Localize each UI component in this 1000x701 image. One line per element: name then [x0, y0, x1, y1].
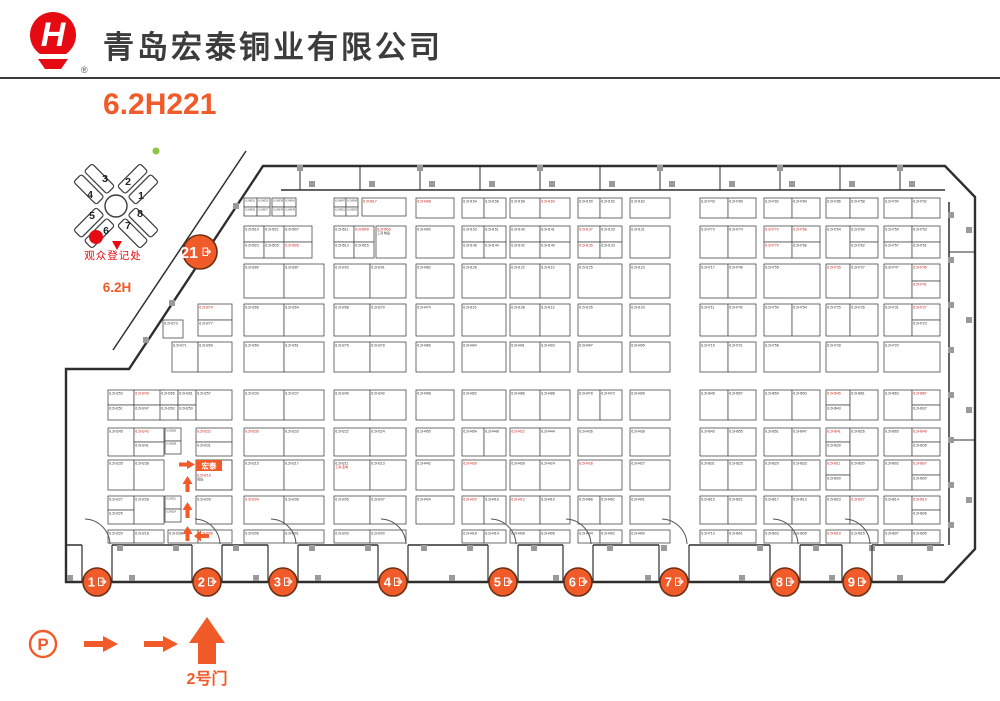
- pillar: [927, 545, 933, 551]
- booth-number: 6.2H270: [371, 306, 385, 310]
- pillar: [849, 181, 855, 187]
- booth-subtext: 工具 宝电: [335, 464, 348, 469]
- pillar: [67, 575, 73, 581]
- pillar: [909, 181, 915, 187]
- booth-number: 6.2H232: [197, 430, 211, 434]
- minimap-hall-number: 8: [137, 208, 143, 220]
- booth-number: 6.2H731: [885, 306, 899, 310]
- booth-number: 6.2H141: [541, 228, 555, 232]
- booth-number: 6.2H116: [463, 306, 476, 310]
- booth-number: 6.2H786: [827, 200, 841, 204]
- walk-arrow-icon: [84, 636, 118, 652]
- booth-number: 6.2H513: [335, 244, 349, 248]
- booth-number: 6.2H753: [913, 228, 927, 232]
- booth-number: 6.2H235: [109, 462, 123, 466]
- booth-number: 6.2H637: [913, 407, 927, 411]
- booth-number: 6.2H774: [729, 228, 743, 232]
- booth-number: 6.2H291: [371, 266, 385, 270]
- booth-number: 6.2H152: [601, 200, 615, 204]
- booth-number: 6.2H162: [631, 200, 645, 204]
- booth-number: 6.2H525: [265, 244, 279, 248]
- booth-number: 6.2H131: [631, 228, 645, 232]
- pillar: [309, 181, 315, 187]
- booth-number: 6.2H242: [371, 392, 385, 396]
- booth-number: 6.2H271: [173, 344, 187, 348]
- pillar: [309, 545, 315, 551]
- minimap-center-hub: [105, 195, 127, 217]
- booth-number: 6.2H726: [851, 306, 865, 310]
- booth-number: 6.2H490: [417, 228, 431, 232]
- pillar: [897, 575, 903, 581]
- booth-number: 6.2H711: [701, 306, 714, 310]
- booth-number: 6.2H220: [109, 532, 123, 536]
- booth-number: 6.2H245: [109, 430, 123, 434]
- booth-number: 6.2H639: [827, 444, 841, 448]
- booth-number: 6.2H151: [485, 228, 499, 232]
- booth-number: 6.2H450: [417, 430, 431, 434]
- booth-number: 6.2H623: [827, 498, 841, 502]
- booth-number: 6.2H509: [355, 228, 369, 232]
- booth-number: 6.2H772: [765, 228, 779, 232]
- pillar: [966, 497, 972, 503]
- pillar: [789, 181, 795, 187]
- booth-number: 6.2H257: [197, 392, 211, 396]
- booth-number: 6.2H438: [631, 430, 645, 434]
- booth-number: 6.2H661: [851, 392, 865, 396]
- booth-number: 6.2H537: [258, 208, 268, 212]
- gate2-entry-arrow-icon: [189, 617, 225, 664]
- booth-number: 6.2H204: [245, 498, 259, 502]
- highlight-booth-name: 宏泰: [202, 460, 217, 470]
- gate-number: 4: [384, 575, 392, 590]
- booth-number: 6.2H416: [485, 498, 499, 502]
- booth-number: 6.2H643: [701, 430, 715, 434]
- booth-number: 6.2H410: [541, 498, 555, 502]
- pillar: [129, 575, 135, 581]
- pillar: [669, 181, 675, 187]
- booth-number: 6.2H200: [371, 532, 385, 536]
- booth-number: 6.2H422: [511, 430, 525, 434]
- booth-number: 6.2H412: [511, 498, 525, 502]
- booth-number: 6.2H754: [793, 306, 807, 310]
- booth-number: 6.2H770: [765, 244, 779, 248]
- booth-number: 6.2H645: [701, 392, 715, 396]
- booth-number: 6.2H247: [135, 407, 149, 411]
- exhibition-map-page: H ® 青岛宏泰铜业有限公司 6.2H221 观众登记处 6.2H 123456…: [0, 0, 1000, 701]
- booth-number: 6.2H784: [793, 200, 807, 204]
- booth-number: 6.2H615: [701, 498, 715, 502]
- booth-number: 6.2H126: [463, 266, 477, 270]
- booth-number: 6.2H519: [245, 228, 259, 232]
- pillar: [117, 545, 123, 551]
- booth-number: 6.2H268: [335, 306, 349, 310]
- booth-number: 6.2H436: [579, 430, 593, 434]
- gate-number: 9: [848, 575, 855, 590]
- booth-number: 6.2H113: [541, 306, 554, 310]
- booth-number: 6.2H745: [913, 266, 927, 270]
- booth-number: 6.2H635: [913, 444, 927, 448]
- pillar: [449, 575, 455, 581]
- booth-number: 6.2H454: [463, 430, 477, 434]
- booth-number: 6.2H273: [164, 322, 178, 326]
- booth-number: 6.2H258: [166, 442, 176, 446]
- booth-number: 6.2H535: [245, 208, 255, 212]
- booth-number: 6.2H780: [729, 200, 743, 204]
- booth-number: 6.2H418: [463, 532, 477, 536]
- booth-number: 6.2H600: [913, 477, 927, 481]
- booth-number: 6.2H651: [765, 430, 779, 434]
- minimap-green-dot: [153, 148, 160, 155]
- pillar: [948, 257, 954, 263]
- booth-number: 6.2H420: [463, 498, 477, 502]
- gate-number: 1: [88, 575, 95, 590]
- booth-number: 6.2H517: [363, 200, 377, 204]
- booth-number: 6.2H533: [258, 199, 268, 203]
- booth-number: 6.2H203: [335, 532, 349, 536]
- booth-number: 6.2H715: [701, 344, 715, 348]
- booth-number: 6.2H755: [765, 266, 779, 270]
- booth-number: 6.2H430: [463, 462, 477, 466]
- booth-number: 6.2H472: [601, 392, 615, 396]
- booth-number: 6.2H133: [601, 244, 615, 248]
- minimap-pointer-icon: [112, 241, 122, 250]
- booth-number: 6.2H428: [579, 462, 593, 466]
- booth-number: 6.2H620: [851, 462, 865, 466]
- booth-number: 6.2H150: [579, 200, 593, 204]
- pillar: [607, 545, 613, 551]
- booth-number: 6.2H665: [885, 430, 899, 434]
- booth-number: 6.2H238: [135, 462, 149, 466]
- booth-number: 6.2H697: [885, 532, 899, 536]
- booth-number: 6.2H280: [245, 266, 259, 270]
- booth-number: 6.2H725: [827, 306, 841, 310]
- booth-number: 6.2H695: [913, 532, 927, 536]
- minimap-hall-number: 2: [125, 176, 131, 188]
- booth-number: 6.2H505: [285, 244, 299, 248]
- booth-number: 6.2H621: [729, 498, 743, 502]
- pillar: [757, 545, 763, 551]
- booth-number: 6.2H757: [885, 244, 899, 248]
- you-are-here-dot: [89, 230, 103, 244]
- pillar: [489, 181, 495, 187]
- pillar: [297, 165, 303, 171]
- booth-number: 6.2H263: [161, 407, 175, 411]
- booth-number: 6.2H264: [285, 306, 299, 310]
- booth-number: 6.2H617: [765, 498, 779, 502]
- booth-number: 6.2H495: [631, 344, 645, 348]
- booth-number: 6.2H156: [485, 200, 499, 204]
- pillar: [966, 317, 972, 323]
- booth-number: 6.2H498: [417, 200, 431, 204]
- booth-number: 6.2H139: [601, 228, 615, 232]
- booth-number: 6.2H649: [913, 430, 927, 434]
- booth-number: 6.2H551: [335, 208, 345, 212]
- pillar: [657, 165, 663, 171]
- booth-number: 6.2H146: [463, 244, 477, 248]
- gate-number: 5: [494, 575, 501, 590]
- booth-number: 6.2H611: [827, 462, 840, 466]
- pillar: [813, 545, 819, 551]
- booth-number: 6.2H549: [347, 199, 357, 203]
- booth-number: 6.2H448: [485, 430, 499, 434]
- booth-number: 6.2H790: [885, 200, 899, 204]
- pillar: [417, 165, 423, 171]
- booth-number: 6.2H507: [285, 228, 299, 232]
- pillar: [948, 437, 954, 443]
- booth-number: 6.2H249: [135, 392, 149, 396]
- booth-number: 6.2H643: [827, 407, 841, 411]
- booth-number: 6.2H762: [851, 244, 865, 248]
- venue-overview-minimap: 观众登记处 6.2H 12345678: [74, 148, 160, 296]
- booth-number: 6.2H442: [417, 462, 431, 466]
- booth-number: 6.2H135: [579, 244, 593, 248]
- booth-number: 6.2H277: [199, 322, 213, 326]
- pillar: [233, 545, 239, 551]
- booth-number: 6.2H269: [199, 344, 213, 348]
- booth-number: 6.2H261: [179, 392, 193, 396]
- booth-number: 6.2H742: [729, 306, 743, 310]
- booth-number: 6.2H737: [851, 266, 865, 270]
- booth-number: 6.2H792: [913, 200, 927, 204]
- booth-number: 6.2H626: [851, 430, 865, 434]
- booth-number: 6.2H401: [631, 498, 645, 502]
- booth-number: 6.2H105: [579, 306, 593, 310]
- booth-number: 6.2H261: [285, 344, 299, 348]
- booth-number: 6.2H213: [371, 462, 385, 466]
- booth-number: 6.2H478: [579, 392, 593, 396]
- booth-number: 6.2H545: [285, 208, 295, 212]
- booth-number: 6.2H741: [913, 283, 927, 287]
- gate-number: 6: [569, 575, 576, 590]
- booth-number: 6.2H641: [827, 430, 841, 434]
- booth-number: 6.2H293: [335, 266, 349, 270]
- booth-number: 6.2H427: [631, 462, 645, 466]
- booth-number: 6.2H260: [245, 344, 259, 348]
- walk-arrow-icon: [144, 636, 178, 652]
- booth-number: 6.2H547: [335, 199, 345, 203]
- booth-number: 6.2H647: [793, 430, 807, 434]
- minimap-hall-number: 4: [87, 189, 93, 201]
- gate-number: 8: [776, 575, 783, 590]
- booth-number: 6.2H207: [371, 498, 385, 502]
- booth-number: 6.2H474: [417, 306, 431, 310]
- booth-number: 6.2H782: [765, 200, 779, 204]
- booth-number: 6.2H144: [485, 244, 499, 248]
- booth-number: 6.2H466: [417, 344, 431, 348]
- booth-number: 6.2H615: [851, 532, 865, 536]
- booth-number: 6.2H760: [851, 228, 865, 232]
- gate2-label: 2号门: [187, 669, 228, 688]
- pillar: [948, 347, 954, 353]
- gate-number: 3: [274, 575, 281, 590]
- booth-number: 6.2H243: [135, 430, 149, 434]
- pillar: [966, 227, 972, 233]
- booth-number: 6.2H659: [765, 392, 779, 396]
- booth-number: 6.2H225: [109, 512, 123, 516]
- booth-number: 6.2H158: [511, 200, 525, 204]
- booth-number: 6.2H531: [245, 199, 255, 203]
- booth-number: 6.2H228: [135, 498, 149, 502]
- floor-plan-canvas: 观众登记处 6.2H 12345678 6.2H2536.2H2516.2H24…: [0, 0, 1000, 701]
- pillar: [429, 181, 435, 187]
- booth-number: 6.2H717: [701, 266, 715, 270]
- booth-number: 6.2H140: [541, 244, 555, 248]
- booth-number: 6.2H645: [827, 392, 841, 396]
- booth-number: 6.2H452: [463, 392, 477, 396]
- booth-number: 6.2H543: [273, 208, 283, 212]
- booth-number: 6.2H631: [701, 462, 715, 466]
- booth-number: 6.2H406: [541, 532, 555, 536]
- booth-number: 6.2H468: [579, 498, 593, 502]
- pillar: [169, 300, 175, 306]
- booth-number: 6.2H482: [417, 266, 431, 270]
- booth-number: 6.2H215: [245, 462, 259, 466]
- booth-number: 6.2H619: [827, 532, 841, 536]
- pillar: [897, 165, 903, 171]
- booth-number: 6.2H727: [913, 306, 927, 310]
- booth-number: 6.2H298: [169, 532, 183, 536]
- booth-number: 6.2H206: [245, 532, 259, 536]
- booth-number: 6.2H735: [827, 266, 841, 270]
- booth-number: 6.2H278: [371, 344, 385, 348]
- booth-number: 6.2H266: [245, 306, 259, 310]
- pillar: [948, 522, 954, 528]
- booth-number: 6.2H241: [135, 444, 149, 448]
- booth-number: 6.2H160: [541, 200, 555, 204]
- hall-plan: 6.2H2536.2H2516.2H2496.2H2476.2H2456.2H2…: [66, 151, 975, 596]
- booth-number: 6.2H511: [335, 228, 348, 232]
- pillar: [829, 575, 835, 581]
- booth-number: 6.2H231: [197, 444, 211, 448]
- booth-subtext: 工具 制品: [377, 230, 390, 235]
- entry-guide: P 2号门: [30, 617, 227, 688]
- booth-number: 6.2H720: [885, 344, 899, 348]
- booth-number: 6.2H663: [885, 392, 899, 396]
- booth-number: 6.2H217: [285, 462, 299, 466]
- pillar: [233, 203, 239, 209]
- booth-number: 6.2H657: [729, 392, 743, 396]
- booth-number: 6.2H614: [885, 498, 899, 502]
- pillar: [553, 575, 559, 581]
- pillar: [609, 181, 615, 187]
- gate-number: 2: [198, 575, 205, 590]
- booth-number: 6.2H205: [335, 498, 349, 502]
- booth-number: 6.2H746: [729, 266, 743, 270]
- pillar: [531, 545, 537, 551]
- booth-number: 6.2H402: [601, 532, 615, 536]
- booth-number: 6.2H404: [579, 532, 593, 536]
- pillar: [143, 337, 149, 343]
- pillar: [948, 302, 954, 308]
- pillar: [173, 545, 179, 551]
- booth-number: 6.2H609: [827, 477, 841, 481]
- booth-number: 6.2H610: [913, 498, 927, 502]
- booth-number: 6.2H759: [885, 228, 899, 232]
- highlight-booth-subtext: 铜业: [197, 477, 203, 482]
- booth-number: 6.2H721: [729, 344, 743, 348]
- pillar: [777, 165, 783, 171]
- booth-number: 6.2H426: [511, 462, 525, 466]
- pillar: [729, 181, 735, 187]
- booth-number: 6.2H227: [109, 498, 123, 502]
- pillar: [966, 407, 972, 413]
- booth-number: 6.2H462: [601, 498, 615, 502]
- booth-number: 6.2H653: [793, 392, 807, 396]
- booth-number: 6.2H274: [199, 306, 213, 310]
- booth-number: 6.2H496: [631, 392, 645, 396]
- booth-number: 6.2H523: [245, 244, 259, 248]
- booth-number: 6.2H603: [765, 532, 779, 536]
- booth-number: 6.2H214: [166, 510, 176, 514]
- booth-number: 6.2H515: [355, 244, 369, 248]
- booth-number: 6.2H766: [793, 244, 807, 248]
- booth-number: 6.2H424: [541, 462, 555, 466]
- booth-number: 6.2H497: [579, 344, 593, 348]
- booth-number: 6.2H728: [827, 344, 841, 348]
- booth-number: 6.2H251: [109, 407, 123, 411]
- booth-number: 6.2H764: [827, 228, 841, 232]
- pillar: [948, 392, 954, 398]
- booth-number: 6.2H444: [541, 430, 555, 434]
- booth-number: 6.2H218: [135, 532, 149, 536]
- booth-number: 6.2H756: [765, 344, 779, 348]
- booth-number: 6.2H236: [245, 430, 259, 434]
- booth-number: 6.2H491: [511, 344, 525, 348]
- minimap-hall-number: 1: [138, 190, 144, 202]
- booth-number: 6.2H629: [765, 462, 779, 466]
- pillar: [645, 575, 651, 581]
- parking-letter: P: [37, 635, 48, 654]
- booth-number: 6.2H239: [245, 392, 259, 396]
- pillar: [315, 575, 321, 581]
- pillar: [948, 482, 954, 488]
- booth-number: 6.2H458: [417, 392, 431, 396]
- gate-number: 21: [180, 245, 198, 262]
- booth-number: 6.2H265: [161, 392, 175, 396]
- booth-number: 6.2H212: [166, 497, 176, 501]
- pillar: [537, 165, 543, 171]
- booth-number: 6.2H224: [371, 430, 385, 434]
- booth-number: 6.2H493: [541, 344, 555, 348]
- minimap-hall-number: 7: [125, 220, 131, 232]
- minimap-hall-number: 5: [89, 210, 95, 222]
- booth-number: 6.2H633: [793, 462, 807, 466]
- booth-number: 6.2H209: [197, 498, 211, 502]
- booth-number: 6.2H601: [729, 532, 743, 536]
- booth-number: 6.2H137: [579, 228, 593, 232]
- booth-number: 6.2H751: [913, 244, 927, 248]
- booth-number: 6.2H494: [463, 344, 477, 348]
- booth-number: 6.2H119: [541, 266, 554, 270]
- booth-number: 6.2H154: [463, 200, 477, 204]
- booth-number: 6.2H253: [109, 392, 123, 396]
- booth-number: 6.2H613: [793, 498, 807, 502]
- booth-number: 6.2H237: [285, 392, 299, 396]
- booth-number: 6.2H287: [285, 266, 299, 270]
- pillar: [467, 545, 473, 551]
- hall-code-label: 6.2H: [103, 280, 132, 295]
- booth-number: 6.2H541: [285, 199, 295, 203]
- booth-number: 6.2H434: [417, 498, 431, 502]
- booth-number: 6.2H123: [631, 266, 645, 270]
- booth-number: 6.2H750: [765, 306, 779, 310]
- booth-number: 6.2H208: [285, 498, 299, 502]
- booth-number: 6.2H414: [485, 532, 499, 536]
- booth-number: 6.2H400: [631, 532, 645, 536]
- booth-number: 6.2H276: [335, 344, 349, 348]
- booth-number: 6.2H222: [335, 430, 349, 434]
- booth-number: 6.2H240: [335, 392, 349, 396]
